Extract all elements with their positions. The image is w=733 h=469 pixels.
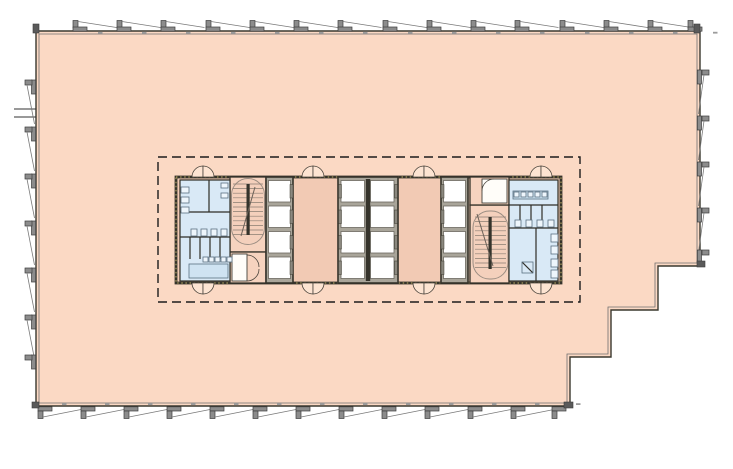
floor-plan-canvas	[0, 0, 733, 469]
stair-core	[470, 177, 509, 283]
washroom-block	[180, 180, 232, 281]
elevator-bank	[441, 177, 468, 283]
floorplan-page	[0, 0, 733, 469]
elevator-bank	[266, 177, 293, 283]
elevator-bank	[338, 177, 398, 283]
washroom-block	[509, 180, 558, 281]
stair-core	[230, 177, 266, 283]
